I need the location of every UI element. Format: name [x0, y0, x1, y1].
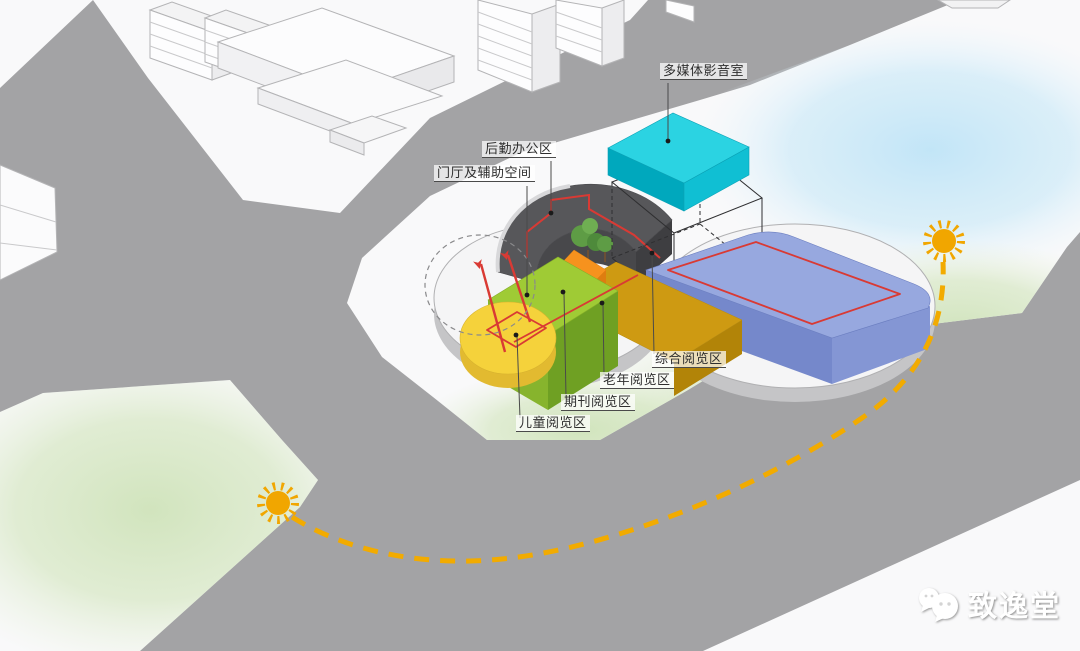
label-elderly-reading: 老年阅览区	[600, 372, 674, 389]
label-logistics-office: 后勤办公区	[482, 141, 556, 158]
label-general-reading: 综合阅览区	[652, 351, 726, 368]
context-building-tower-1	[478, 0, 560, 92]
watermark-brand-text: 致逸堂	[968, 583, 1061, 625]
label-multimedia-room: 多媒体影音室	[660, 63, 747, 80]
label-periodical-reading: 期刊阅览区	[561, 394, 635, 411]
axonometric-scene	[0, 0, 1080, 651]
label-children-reading: 儿童阅览区	[516, 415, 590, 432]
site-diagram: 多媒体影音室 后勤办公区 门厅及辅助空间 综合阅览区 老年阅览区 期刊阅览区 儿…	[0, 0, 1080, 651]
wechat-logo-icon	[916, 584, 962, 624]
label-lobby-auxiliary: 门厅及辅助空间	[434, 165, 535, 182]
watermark: 致逸堂	[916, 583, 1066, 625]
zone-children-volume	[460, 302, 556, 388]
context-building-northeast	[938, 0, 1010, 8]
